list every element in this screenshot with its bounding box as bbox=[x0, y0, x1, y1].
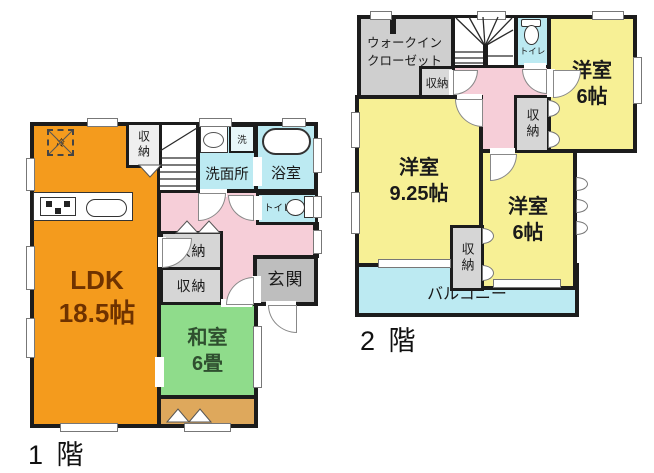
washer-box: 洗 bbox=[229, 125, 255, 153]
storage-2f-bottom-label: 収納 bbox=[458, 242, 477, 274]
washer-label: 洗 bbox=[237, 132, 247, 146]
stairs-1f bbox=[157, 122, 200, 193]
storage-2f-left-label: 収納 bbox=[426, 75, 449, 91]
toilet-2f-label: トイレ bbox=[520, 45, 546, 57]
toilet-2f-bowl bbox=[524, 25, 539, 45]
stove-burner bbox=[55, 208, 61, 214]
window bbox=[26, 318, 35, 358]
bath-label: 浴室 bbox=[271, 165, 301, 184]
room-washitsu: 和室 6畳 bbox=[157, 301, 258, 400]
floor-plan-canvas: バルコニー LDK 18.5帖 和室 6畳 収納 洗面所 浴室 トイレ 収納 収… bbox=[0, 0, 654, 473]
shutter-mark bbox=[576, 177, 588, 191]
shutter-mark bbox=[576, 221, 588, 235]
storage-1f-b: 収納 bbox=[160, 267, 223, 305]
door-gap bbox=[253, 157, 262, 186]
window bbox=[493, 279, 561, 288]
window bbox=[26, 246, 35, 290]
storage-2f-mid-label: 収納 bbox=[523, 108, 542, 140]
ldk-name: LDK bbox=[38, 264, 156, 297]
refrigerator: 冷 bbox=[47, 129, 74, 156]
ldk-size: 18.5帖 bbox=[38, 297, 156, 330]
storage-1f-top: 収納 bbox=[126, 122, 162, 168]
room-entrance: 玄関 bbox=[253, 255, 318, 306]
window bbox=[253, 326, 262, 388]
wic-line1: ウォークイン bbox=[367, 34, 442, 52]
door-gap bbox=[155, 357, 164, 387]
stove-burner bbox=[46, 201, 52, 207]
washroom-label: 洗面所 bbox=[205, 166, 249, 184]
window bbox=[199, 118, 232, 127]
window bbox=[592, 11, 624, 20]
room-b-name: 洋室 bbox=[399, 155, 439, 181]
kitchen-sink bbox=[86, 199, 127, 217]
storage-2f-bottom: 収納 bbox=[450, 225, 484, 291]
window bbox=[184, 423, 231, 432]
floor1-label: 1 階 bbox=[28, 433, 87, 472]
bathtub bbox=[262, 128, 311, 155]
window bbox=[351, 192, 360, 234]
ldk-label: LDK 18.5帖 bbox=[38, 264, 156, 329]
window bbox=[313, 230, 322, 254]
floor2-label: 2 階 bbox=[360, 319, 419, 358]
room-a-size: 6帖 bbox=[576, 84, 607, 110]
stairs-2f bbox=[452, 15, 517, 68]
door-gap bbox=[254, 196, 262, 220]
window bbox=[313, 196, 322, 218]
storage-2f-mid: 収納 bbox=[514, 95, 550, 153]
door-arc bbox=[268, 305, 297, 333]
washitsu-name: 和室 bbox=[188, 325, 228, 351]
entrance-label: 玄関 bbox=[268, 269, 304, 291]
window bbox=[351, 112, 360, 148]
window bbox=[282, 118, 306, 127]
window bbox=[378, 259, 451, 268]
refrigerator-label: 冷 bbox=[56, 136, 65, 149]
window bbox=[60, 423, 118, 432]
shutter-mark bbox=[576, 199, 588, 213]
storage-1f-b-label: 収納 bbox=[177, 276, 207, 296]
washitsu-size: 6畳 bbox=[192, 351, 223, 377]
washroom-sink-bowl bbox=[203, 132, 224, 148]
room-c-size: 6帖 bbox=[512, 220, 543, 246]
storage-1f-top-label: 収納 bbox=[136, 130, 153, 160]
window bbox=[370, 11, 392, 20]
room-b-size: 9.25帖 bbox=[390, 181, 449, 207]
window bbox=[87, 118, 118, 127]
room-c-name: 洋室 bbox=[508, 194, 548, 220]
window bbox=[26, 158, 35, 191]
window bbox=[477, 11, 506, 20]
wic-label: ウォークイン クローゼット bbox=[367, 34, 442, 70]
stove-burner bbox=[64, 201, 70, 207]
window bbox=[313, 138, 322, 173]
window bbox=[633, 57, 642, 104]
toilet-1f-bowl bbox=[286, 199, 305, 216]
